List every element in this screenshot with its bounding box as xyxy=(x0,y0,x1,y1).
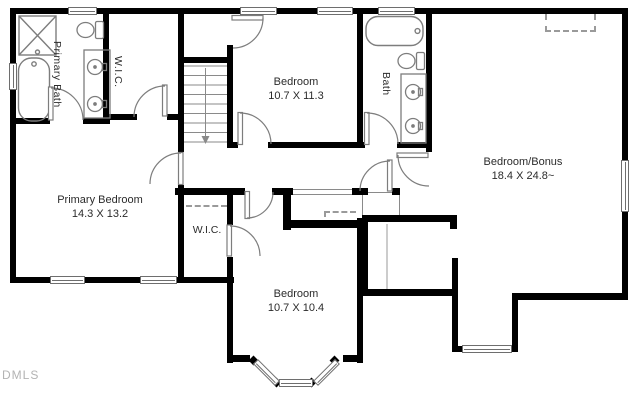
watermark: DMLS xyxy=(2,368,39,382)
room-label-bonus: Bedroom/Bonus 18.4 X 24.8~ xyxy=(433,155,613,183)
bathtub-icon xyxy=(366,17,423,46)
wall xyxy=(227,257,233,363)
window-marker xyxy=(68,7,97,15)
window-marker xyxy=(9,63,17,90)
closet-shelf-dashed xyxy=(186,200,227,207)
room-dims: 14.3 X 13.2 xyxy=(72,208,128,220)
window-marker xyxy=(279,379,313,387)
window-marker xyxy=(621,160,629,212)
wall xyxy=(227,142,238,148)
wall xyxy=(268,142,363,148)
wall xyxy=(426,14,432,152)
window-marker xyxy=(378,7,415,15)
wall xyxy=(103,14,109,120)
wall xyxy=(10,8,68,14)
bay-window-marker xyxy=(313,359,340,386)
wall xyxy=(177,277,234,283)
wall xyxy=(178,14,184,152)
cased-opening xyxy=(293,189,352,195)
wall xyxy=(622,8,628,160)
room-dims: 10.7 X 10.4 xyxy=(268,302,324,314)
room-label-primary-wic: W.I.C. xyxy=(112,56,124,96)
wall xyxy=(283,220,368,228)
wall xyxy=(452,258,458,352)
room-name: Bedroom xyxy=(274,288,319,300)
room-label-bedroom-top: Bedroom 10.7 X 11.3 xyxy=(233,75,359,103)
bathtub-icon xyxy=(19,58,50,121)
wall xyxy=(277,8,317,14)
room-label-bath: Bath xyxy=(380,72,392,112)
floor-plan: Primary Bath W.I.C. Bath Bedroom 10.7 X … xyxy=(0,0,640,400)
wall xyxy=(392,188,400,195)
toilet-icon xyxy=(398,53,425,70)
linen-closet xyxy=(362,192,400,216)
sink-vanity-icon xyxy=(401,74,426,143)
wall xyxy=(227,188,233,225)
room-label-bedroom-bottom: Bedroom 10.7 X 10.4 xyxy=(234,287,358,315)
room-name: Bedroom/Bonus xyxy=(484,156,563,168)
toilet-icon xyxy=(77,22,104,39)
room-label-wic2: W.I.C. xyxy=(184,223,230,237)
wall xyxy=(10,118,50,124)
wall xyxy=(343,355,363,362)
window-marker xyxy=(317,7,353,15)
wall xyxy=(10,8,16,63)
bay-window-marker xyxy=(253,359,280,386)
wall xyxy=(184,57,227,63)
window-marker xyxy=(140,276,177,284)
window-marker xyxy=(240,7,277,15)
wall xyxy=(362,215,457,222)
wall xyxy=(272,188,293,195)
window-marker xyxy=(50,276,85,284)
wall xyxy=(357,142,365,148)
wall xyxy=(85,277,140,283)
room-name: Bedroom xyxy=(274,76,319,88)
wall xyxy=(450,222,457,229)
wall xyxy=(175,188,245,195)
wall xyxy=(452,346,462,352)
room-label-primary-bath: Primary Bath xyxy=(51,41,63,121)
wall xyxy=(622,212,628,300)
wall xyxy=(228,355,250,362)
window-marker xyxy=(462,345,512,353)
attic-access-dashed xyxy=(545,14,596,32)
wall xyxy=(512,293,628,300)
wall xyxy=(97,8,240,14)
stairs-icon xyxy=(184,66,227,144)
wall xyxy=(10,277,50,283)
wall xyxy=(362,289,458,296)
room-dims: 10.7 X 11.3 xyxy=(268,90,323,102)
wall xyxy=(415,8,628,14)
wall xyxy=(103,114,137,120)
room-dims: 18.4 X 24.8~ xyxy=(492,170,555,182)
room-label-primary-bedroom: Primary Bedroom 14.3 X 13.2 xyxy=(18,193,182,221)
wall xyxy=(352,188,368,195)
wall xyxy=(512,293,518,352)
room-name: Primary Bedroom xyxy=(57,194,143,206)
